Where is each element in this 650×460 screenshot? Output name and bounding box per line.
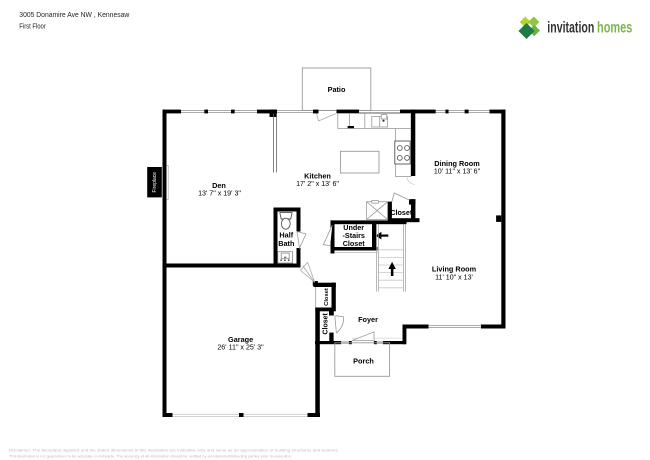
svg-text:26' 11" x 25' 3": 26' 11" x 25' 3": [217, 344, 264, 352]
svg-text:11' 10" x 13': 11' 10" x 13': [435, 273, 473, 281]
svg-text:Dining Room: Dining Room: [434, 159, 480, 168]
svg-text:Foyer: Foyer: [358, 315, 378, 324]
svg-text:Closet: Closet: [323, 312, 330, 334]
svg-text:Porch: Porch: [353, 356, 374, 365]
svg-text:homes: homes: [597, 19, 632, 36]
svg-text:Den: Den: [212, 181, 226, 190]
svg-text:Living Room: Living Room: [432, 265, 477, 274]
svg-text:Bath: Bath: [278, 239, 294, 248]
svg-text:invitation: invitation: [547, 19, 594, 36]
svg-text:This illustration is not guara: This illustration is not guaranteed to b…: [9, 455, 292, 459]
svg-text:Closet: Closet: [343, 239, 366, 248]
svg-text:Fireplace: Fireplace: [152, 172, 158, 193]
svg-text:Closet: Closet: [390, 208, 413, 217]
svg-text:Disclaimer: The floorplans dep: Disclaimer: The floorplans depicted and …: [9, 448, 339, 452]
svg-text:3005 Donamire Ave NW , Kennesa: 3005 Donamire Ave NW , Kennesaw: [19, 10, 130, 19]
svg-text:Garage: Garage: [228, 335, 253, 344]
svg-text:Kitchen: Kitchen: [304, 171, 331, 180]
svg-text:First Floor: First Floor: [19, 22, 46, 31]
svg-text:10' 11" x 13' 6": 10' 11" x 13' 6": [434, 168, 481, 176]
svg-text:Closet: Closet: [324, 288, 330, 306]
svg-text:Patio: Patio: [328, 85, 346, 94]
svg-text:13' 7" x 19' 3": 13' 7" x 19' 3": [198, 190, 241, 198]
svg-text:17' 2" x 13' 6": 17' 2" x 13' 6": [296, 180, 339, 188]
